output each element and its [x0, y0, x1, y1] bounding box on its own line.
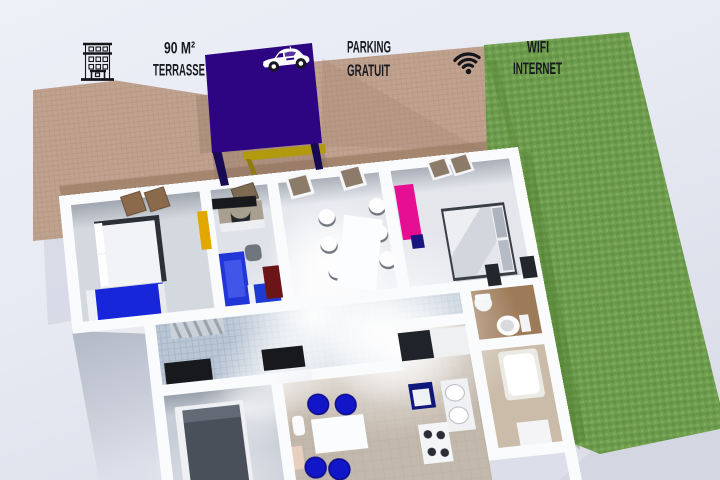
- svg-text:90 M²: 90 M²: [164, 39, 195, 58]
- svg-text:WIFI: WIFI: [527, 38, 549, 57]
- svg-text:GRATUIT: GRATUIT: [347, 61, 390, 80]
- svg-text:TERRASSE: TERRASSE: [153, 61, 205, 80]
- svg-text:INTERNET: INTERNET: [513, 59, 562, 78]
- svg-text:PARKING: PARKING: [347, 38, 391, 57]
